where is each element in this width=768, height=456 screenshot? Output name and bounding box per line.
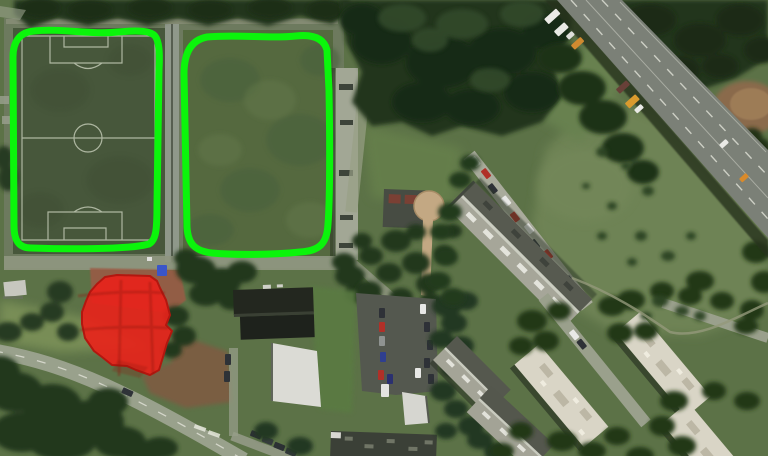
fence-shadow — [171, 24, 173, 262]
ellipse-shape — [661, 251, 675, 261]
ellipse-shape — [266, 114, 334, 166]
ellipse-shape — [533, 331, 559, 351]
ellipse-shape — [579, 100, 627, 134]
ellipse-shape — [597, 232, 607, 240]
ellipse-shape — [734, 392, 760, 410]
rect-shape — [225, 354, 231, 365]
ellipse-shape — [108, 44, 152, 76]
ellipse-shape — [509, 337, 533, 355]
ellipse-shape — [68, 0, 112, 20]
rect-shape — [2, 116, 10, 124]
ellipse-shape — [30, 68, 90, 112]
ellipse-shape — [627, 160, 659, 184]
ellipse-shape — [694, 311, 706, 321]
top-fence-path — [6, 19, 338, 24]
ellipse-shape — [441, 288, 465, 306]
rect-shape — [389, 194, 401, 203]
ellipse-shape — [16, 192, 64, 228]
ellipse-shape — [635, 231, 647, 241]
rect-shape — [387, 374, 393, 384]
ellipse-shape — [444, 89, 500, 125]
ellipse-shape — [470, 68, 510, 92]
ellipse-shape — [402, 252, 430, 274]
rect-shape — [339, 243, 353, 248]
ellipse-shape — [254, 422, 278, 440]
rect-shape — [428, 374, 434, 384]
ellipse-shape — [449, 172, 471, 188]
ellipse-shape — [621, 162, 631, 170]
ellipse-shape — [174, 249, 198, 267]
ellipse-shape — [627, 258, 637, 266]
ellipse-shape — [444, 400, 468, 418]
ellipse-shape — [332, 253, 356, 271]
ellipse-shape — [509, 422, 533, 440]
rect-shape — [425, 440, 433, 444]
playground-roundabout — [414, 191, 444, 221]
ellipse-shape — [582, 183, 590, 189]
ellipse-shape — [412, 28, 448, 52]
ellipse-shape — [716, 4, 764, 36]
ellipse-shape — [378, 4, 426, 32]
rect-shape — [3, 280, 26, 297]
ellipse-shape — [188, 0, 232, 20]
ellipse-shape — [57, 323, 79, 341]
ellipse-shape — [702, 54, 738, 78]
ellipse-shape — [227, 261, 257, 283]
ellipse-shape — [686, 232, 696, 240]
white-dot — [147, 257, 152, 261]
ellipse-shape — [660, 391, 688, 411]
satellite-map-image — [0, 0, 768, 456]
ellipse-shape — [430, 224, 452, 240]
rect-shape — [3, 296, 23, 299]
ellipse-shape — [460, 155, 480, 171]
rect-shape — [330, 431, 437, 456]
rect-shape — [277, 284, 283, 287]
ellipse-shape — [198, 134, 242, 166]
clubhouse-building — [233, 283, 315, 340]
ellipse-shape — [376, 263, 402, 283]
ellipse-shape — [642, 186, 654, 196]
ellipse-shape — [427, 272, 451, 290]
ellipse-shape — [220, 168, 280, 212]
rect-shape — [340, 215, 353, 220]
rect-shape — [415, 368, 421, 378]
ellipse-shape — [359, 247, 383, 265]
ellipse-shape — [607, 202, 617, 210]
rect-shape — [420, 304, 426, 314]
ellipse-shape — [547, 302, 571, 320]
ellipse-shape — [307, 0, 343, 20]
ellipse-shape — [352, 233, 372, 249]
ellipse-shape — [434, 248, 458, 266]
small-white-building — [402, 392, 429, 425]
ellipse-shape — [596, 147, 608, 157]
rect-shape — [233, 287, 314, 315]
rect-shape — [240, 314, 315, 340]
ellipse-shape — [674, 23, 726, 57]
blue-object — [157, 265, 167, 276]
ellipse-shape — [668, 436, 696, 456]
rect-shape — [331, 432, 341, 438]
rect-shape — [424, 322, 430, 332]
ellipse-shape — [287, 437, 313, 455]
rect-shape — [364, 444, 373, 448]
bottom-dark-building — [330, 431, 437, 456]
rect-shape — [263, 285, 271, 289]
rect-shape — [408, 447, 417, 451]
ellipse-shape — [438, 203, 462, 221]
ellipse-shape — [634, 322, 658, 340]
ellipse-shape — [710, 292, 734, 310]
ellipse-shape — [547, 431, 577, 451]
ellipse-shape — [734, 318, 758, 334]
ellipse-shape — [189, 282, 223, 306]
ellipse-shape — [40, 302, 64, 322]
ellipse-shape — [675, 306, 689, 316]
ellipse-shape — [20, 313, 44, 331]
ellipse-shape — [602, 133, 644, 163]
rect-shape — [345, 436, 353, 440]
ellipse-shape — [607, 323, 633, 343]
ellipse-shape — [558, 71, 606, 105]
ellipse-shape — [47, 281, 73, 303]
ellipse-shape — [86, 156, 154, 204]
ellipse-shape — [678, 287, 702, 305]
ellipse-shape — [406, 224, 426, 240]
ellipse-shape — [652, 295, 668, 307]
white-flat-building — [272, 343, 321, 407]
rect-shape — [379, 336, 385, 346]
rect-shape — [380, 352, 386, 362]
ellipse-shape — [649, 416, 675, 436]
rect-shape — [381, 384, 389, 397]
rect-shape — [0, 96, 9, 104]
rect-shape — [387, 439, 395, 443]
rect-shape — [378, 370, 384, 380]
satellite-screenshot — [0, 0, 768, 456]
ellipse-shape — [504, 72, 560, 112]
ellipse-shape — [244, 80, 296, 120]
rect-shape — [340, 120, 353, 125]
rect-shape — [339, 84, 353, 90]
ellipse-shape — [604, 427, 630, 445]
rect-shape — [379, 322, 385, 332]
ellipse-shape — [435, 423, 457, 439]
rect-shape — [424, 358, 430, 368]
ellipse-shape — [441, 313, 467, 333]
ellipse-shape — [500, 1, 544, 27]
rect-shape — [379, 308, 385, 318]
ellipse-shape — [392, 82, 452, 122]
ellipse-shape — [340, 4, 384, 36]
rect-shape — [224, 371, 230, 382]
ellipse-shape — [702, 382, 726, 400]
ellipse-shape — [517, 310, 547, 332]
